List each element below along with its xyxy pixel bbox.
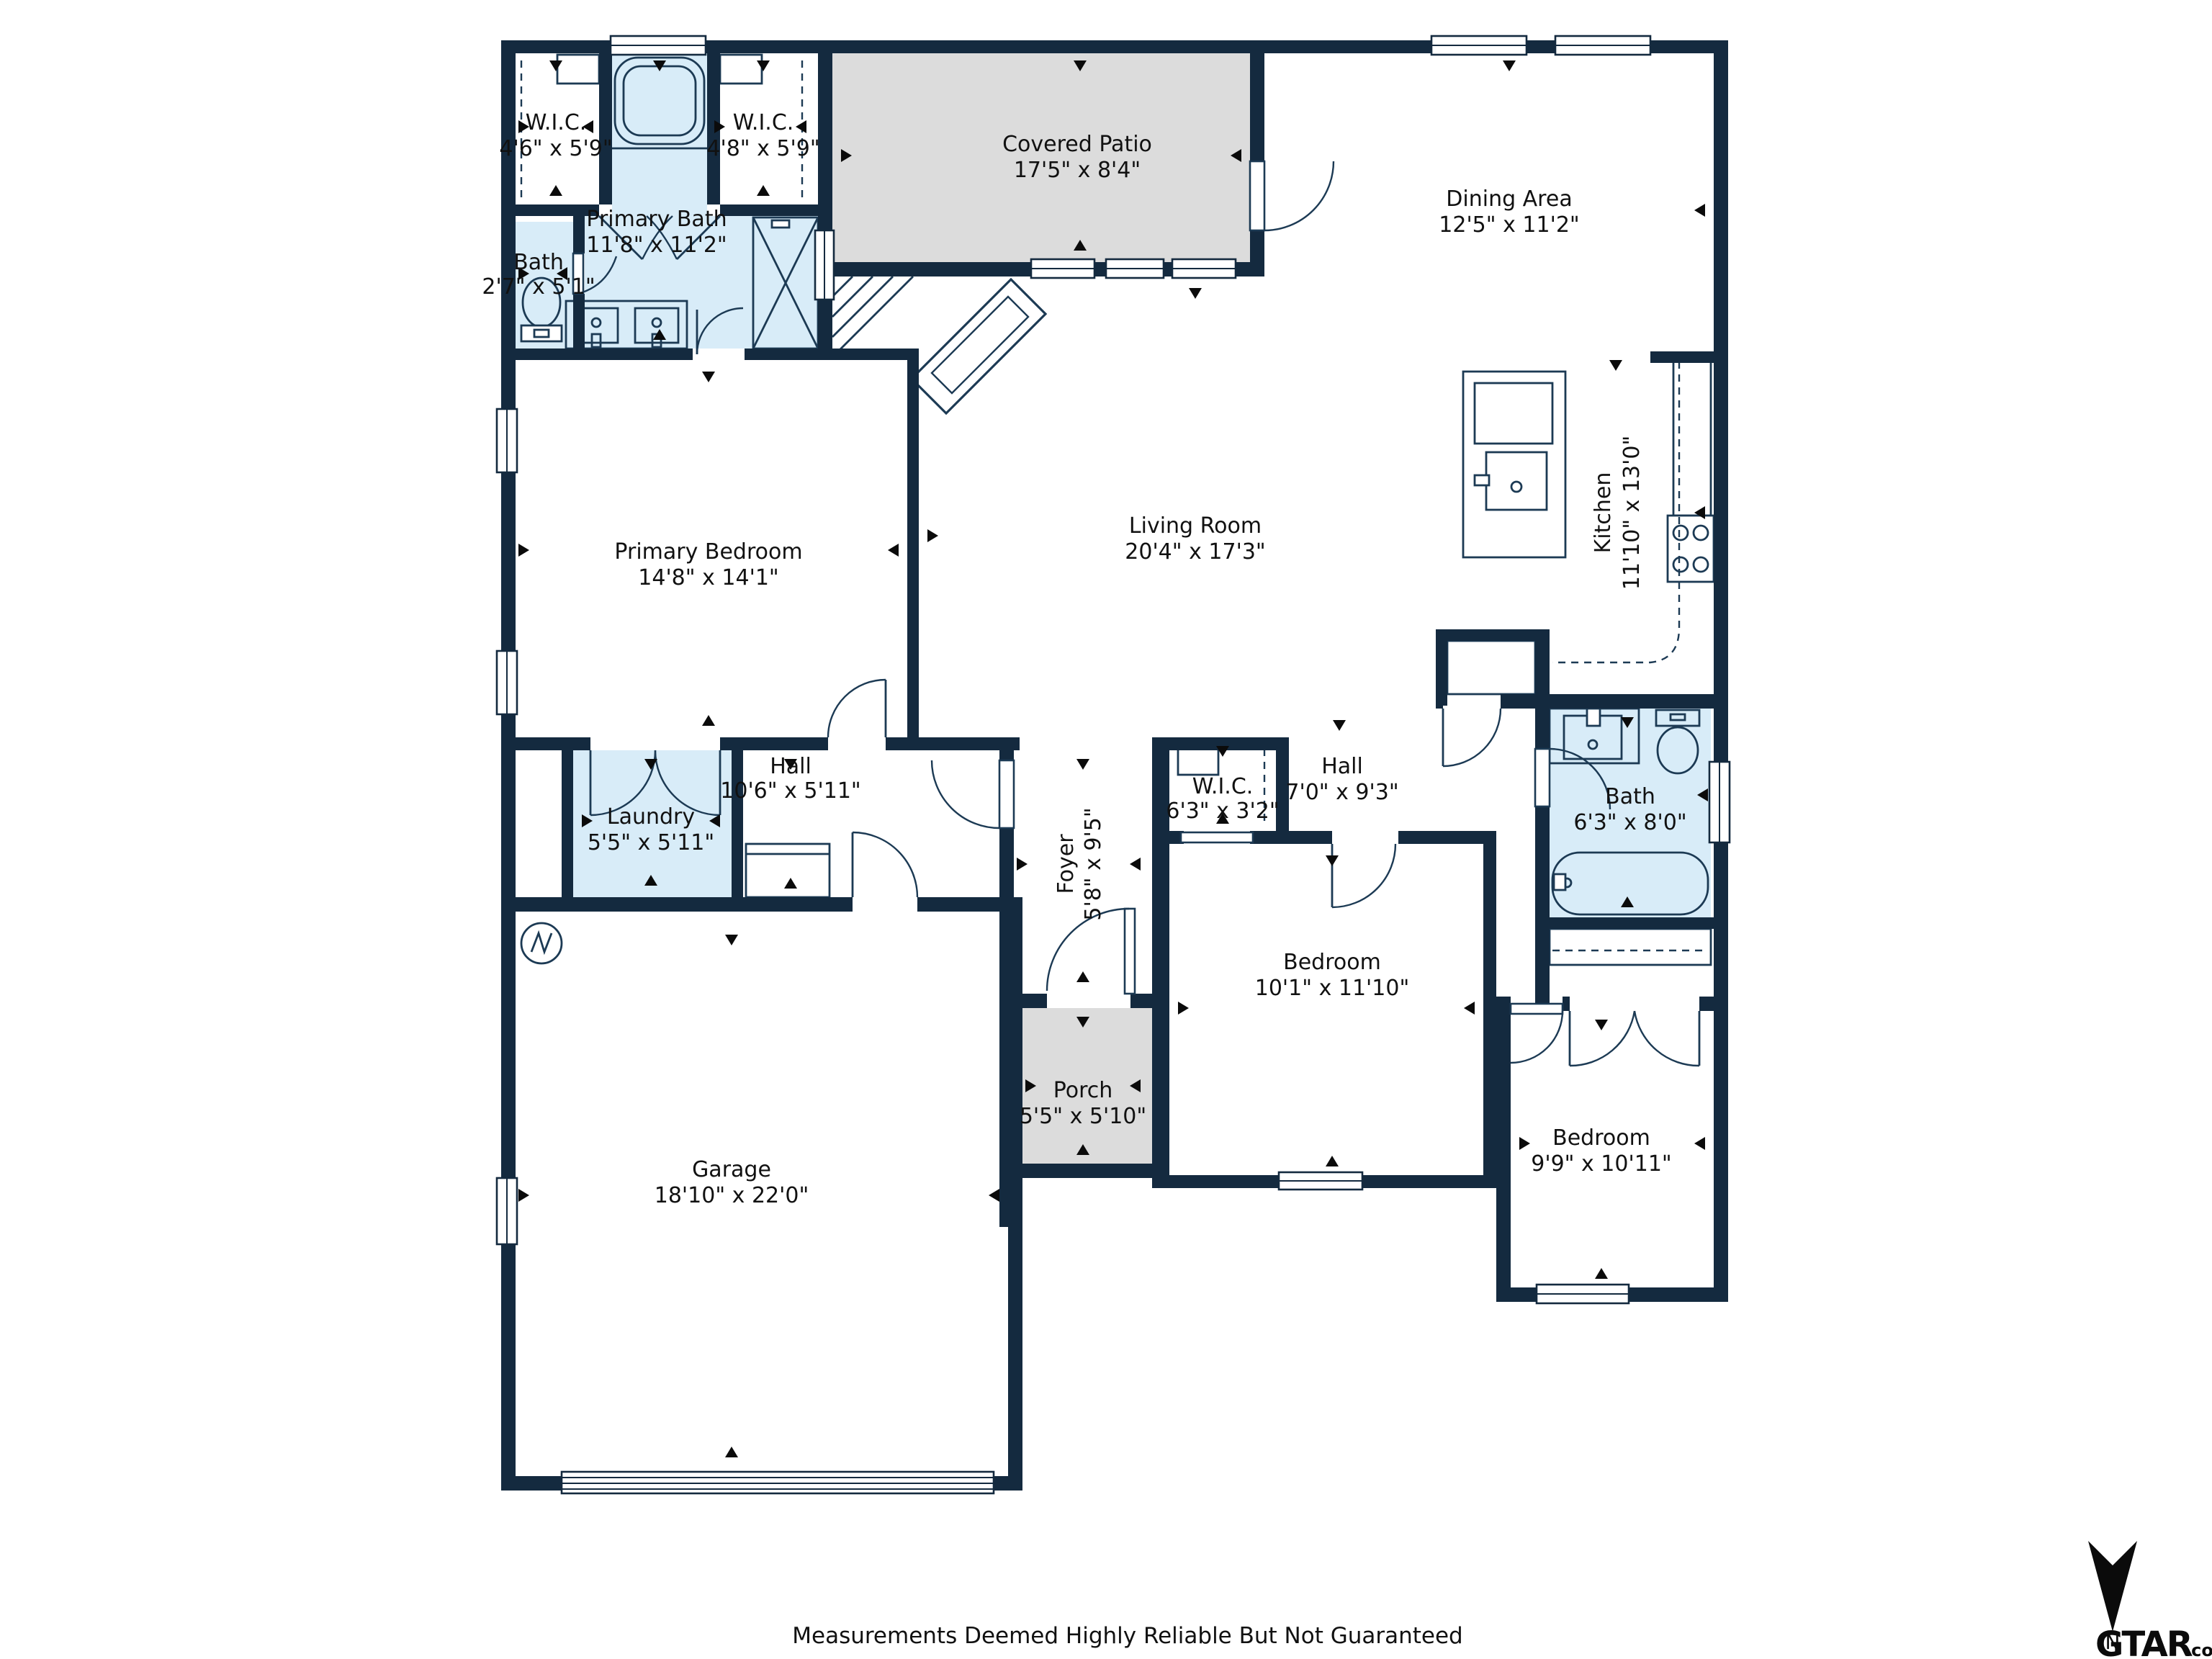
room-name: W.I.C. bbox=[526, 110, 587, 135]
bath2-door bbox=[1535, 749, 1550, 806]
room-dims: 18'10" x 22'0" bbox=[655, 1183, 809, 1208]
room-name: W.I.C. bbox=[1192, 774, 1254, 799]
window-icon bbox=[1537, 1285, 1629, 1303]
room-dims: 20'4" x 17'3" bbox=[1125, 539, 1265, 565]
window-icon bbox=[497, 409, 517, 472]
kitchen-island bbox=[1463, 372, 1565, 557]
room-dims: 4'6" x 5'9" bbox=[499, 136, 612, 161]
room-name: Hall bbox=[770, 754, 811, 779]
window-icon bbox=[1031, 259, 1094, 278]
room-name: Porch bbox=[1053, 1078, 1113, 1103]
room-dims: 17'5" x 8'4" bbox=[1014, 158, 1141, 183]
room-name: Bath bbox=[1605, 784, 1655, 809]
room-dims: 11'10" x 13'0" bbox=[1619, 436, 1645, 590]
room-dims: 6'3" x 3'2" bbox=[1166, 799, 1279, 824]
room-dims: 10'1" x 11'10" bbox=[1255, 976, 1410, 1001]
wic-sliding-door bbox=[1181, 832, 1253, 842]
hall-closet bbox=[746, 844, 829, 897]
room-dims: 5'5" x 5'11" bbox=[588, 830, 714, 855]
room-living: Living Room 20'4" x 17'3" bbox=[1125, 513, 1265, 565]
window-icon bbox=[497, 651, 517, 714]
room-name: Kitchen bbox=[1591, 472, 1616, 554]
room-name: Bedroom bbox=[1552, 1125, 1650, 1151]
room-name: Laundry bbox=[607, 804, 695, 829]
room-name: Hall bbox=[1321, 754, 1363, 779]
room-name: Covered Patio bbox=[1002, 132, 1152, 157]
room-dims: 6'3" x 8'0" bbox=[1573, 810, 1686, 835]
window-icon bbox=[1106, 259, 1164, 278]
room-dims: 5'5" x 5'10" bbox=[1020, 1104, 1146, 1129]
room-dims: 5'8" x 9'5" bbox=[1081, 807, 1106, 920]
room-dims: 4'8" x 5'9" bbox=[706, 136, 819, 161]
room-primary-bath: Primary Bath 11'8" x 11'2" bbox=[586, 207, 727, 258]
room-name: Primary Bath bbox=[586, 207, 727, 232]
shower-head-icon bbox=[772, 220, 789, 228]
hall-foyer-door bbox=[999, 760, 1014, 828]
north-arrow-icon bbox=[2088, 1541, 2137, 1632]
window-icon bbox=[1555, 36, 1650, 55]
window-icon bbox=[497, 1178, 517, 1244]
room-name: Bedroom bbox=[1283, 950, 1381, 975]
room-dims: 9'9" x 10'11" bbox=[1531, 1151, 1671, 1177]
window-icon bbox=[1279, 1172, 1362, 1190]
room-covered-patio: Covered Patio 17'5" x 8'4" bbox=[1002, 132, 1152, 183]
window-icon bbox=[1709, 762, 1730, 842]
room-name: Bath bbox=[513, 250, 564, 275]
room-primary-bedroom: Primary Bedroom 14'8" x 14'1" bbox=[614, 539, 802, 590]
water-heater-icon bbox=[521, 923, 562, 963]
stove-icon bbox=[1668, 516, 1714, 582]
room-name: Living Room bbox=[1129, 513, 1262, 539]
floor-plan-page: W.I.C. 4'6" x 5'9" Primary Bath 11'8" x … bbox=[0, 0, 2212, 1659]
disclaimer-text: Measurements Deemed Highly Reliable But … bbox=[792, 1623, 1462, 1649]
room-dims: 2'7" x 5'1" bbox=[482, 274, 595, 300]
floor-plan-canvas: W.I.C. 4'6" x 5'9" Primary Bath 11'8" x … bbox=[0, 0, 2212, 1659]
logo-suffix: .com bbox=[2185, 1640, 2212, 1659]
window-icon bbox=[815, 230, 834, 300]
gtar-logo: GTAR .com bbox=[2095, 1624, 2212, 1659]
room-name: Garage bbox=[692, 1157, 771, 1182]
room-dims: 7'0" x 9'3" bbox=[1285, 780, 1398, 805]
pantry-shelf bbox=[1447, 641, 1535, 694]
primary-bath-alcove-floor bbox=[612, 52, 707, 216]
bedroom2-door bbox=[1511, 1004, 1563, 1014]
room-name: Foyer bbox=[1053, 834, 1079, 894]
room-name: Primary Bedroom bbox=[614, 539, 802, 565]
garage-door bbox=[562, 1472, 994, 1493]
room-dims: 11'8" x 11'2" bbox=[586, 233, 727, 258]
window-icon bbox=[611, 36, 706, 55]
window-icon bbox=[1172, 259, 1236, 278]
logo-text: GTAR bbox=[2095, 1624, 2193, 1659]
room-name: W.I.C. bbox=[733, 110, 794, 135]
room-name: Dining Area bbox=[1446, 186, 1572, 212]
front-door bbox=[1125, 909, 1135, 994]
room-dims: 14'8" x 14'1" bbox=[638, 565, 778, 590]
room-dims: 10'6" x 5'11" bbox=[720, 778, 860, 804]
window-icon bbox=[1431, 36, 1527, 55]
room-dining: Dining Area 12'5" x 11'2" bbox=[1439, 186, 1579, 238]
room-dims: 12'5" x 11'2" bbox=[1439, 212, 1579, 238]
patio-dining-door bbox=[1250, 161, 1264, 230]
